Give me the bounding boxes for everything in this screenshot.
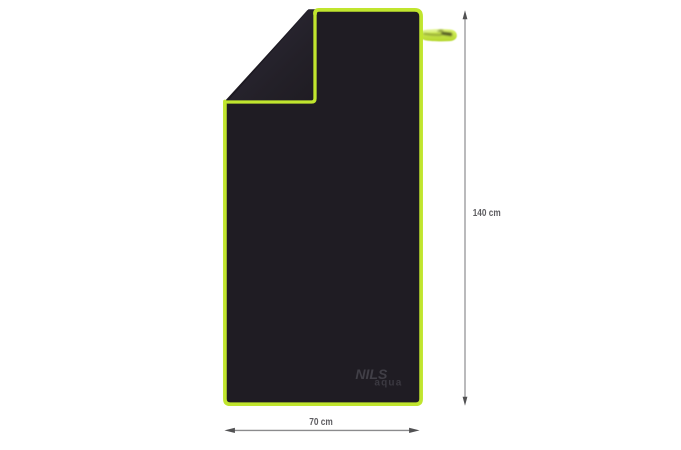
svg-text:140 cm: 140 cm <box>473 208 501 219</box>
svg-text:aqua: aqua <box>374 377 402 388</box>
svg-text:70 cm: 70 cm <box>309 417 333 428</box>
